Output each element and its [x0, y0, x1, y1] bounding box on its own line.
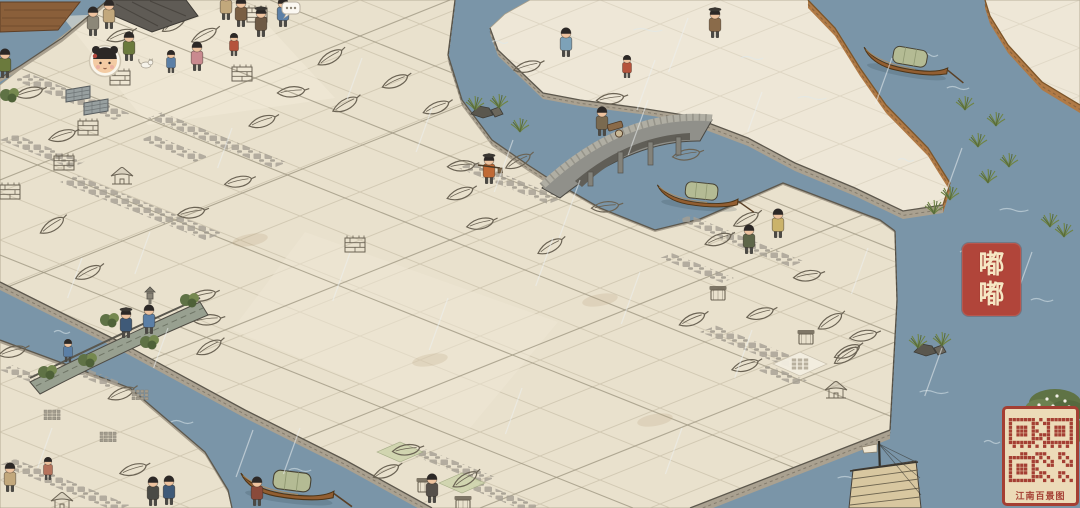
game-viewport: 嘟 嘟 江南百景图: [0, 0, 1080, 508]
slab-grate: [798, 367, 802, 370]
bridge-pillar: [648, 142, 653, 165]
slab-grate: [792, 363, 796, 366]
qr-caption: 江南百景图: [1015, 489, 1065, 502]
slab-grate: [804, 367, 808, 370]
stamp-char-2: 嘟: [978, 280, 1004, 310]
slab-grate: [804, 359, 808, 362]
slab-grate: [792, 367, 796, 370]
qr-code: 江南百景图: [1002, 406, 1079, 506]
slab-grate: [798, 359, 802, 362]
slab-grate: [804, 363, 808, 366]
dudu-watermark-stamp: 嘟 嘟: [962, 243, 1021, 316]
slab-grate: [798, 363, 802, 366]
npc-face-bubble[interactable]: [90, 46, 121, 77]
bridge-pillar: [618, 152, 623, 173]
game-scene: [0, 0, 1080, 508]
qr-modules: [1008, 412, 1074, 488]
bridge-pillar: [676, 137, 681, 155]
hair-flower: [93, 54, 97, 58]
bridge-pillar: [588, 172, 593, 186]
stamp-char-1: 嘟: [978, 250, 1004, 280]
slab-grate: [792, 359, 796, 362]
